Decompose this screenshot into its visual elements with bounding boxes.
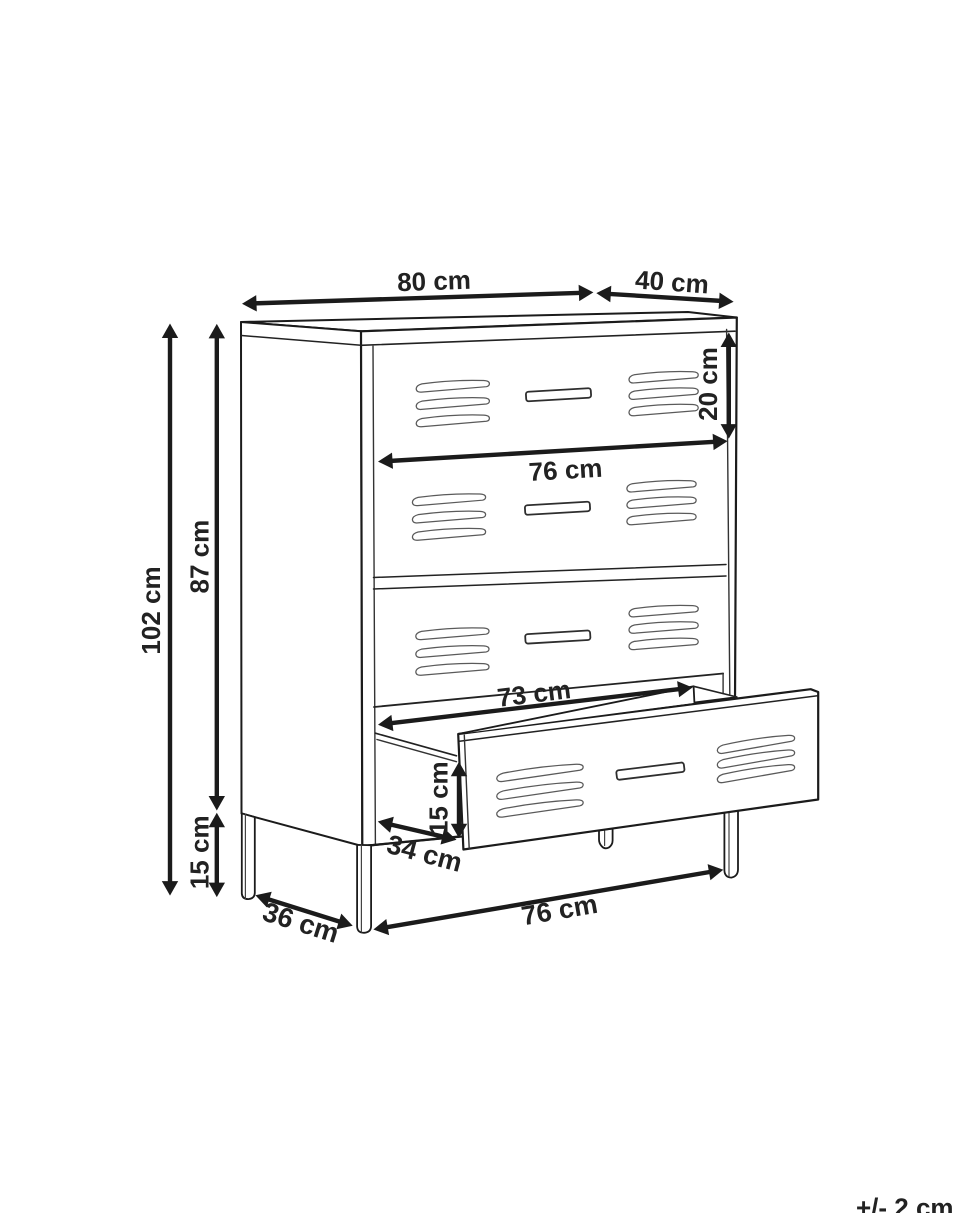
svg-text:20 cm: 20 cm	[693, 347, 723, 421]
svg-text:15 cm: 15 cm	[424, 761, 454, 835]
svg-text:15 cm: 15 cm	[185, 815, 215, 889]
svg-text:87 cm: 87 cm	[184, 520, 214, 594]
svg-text:40 cm: 40 cm	[634, 264, 710, 299]
svg-text:76 cm: 76 cm	[528, 453, 603, 487]
svg-text:+/- 2 cm: +/- 2 cm	[856, 1193, 954, 1213]
svg-text:80 cm: 80 cm	[397, 265, 472, 298]
svg-text:102 cm: 102 cm	[136, 566, 166, 654]
